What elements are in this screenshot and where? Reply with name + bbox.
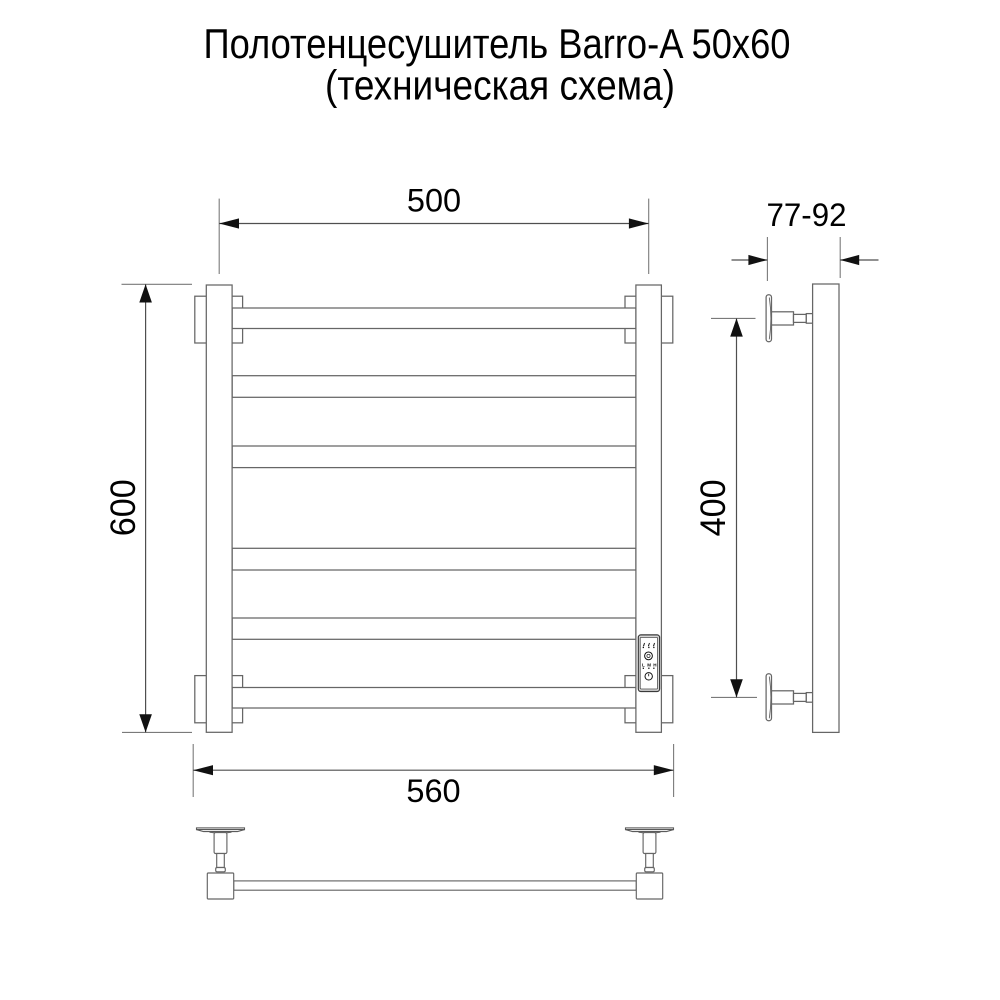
svg-text:600: 600 — [103, 479, 143, 536]
svg-text:500: 500 — [407, 183, 461, 219]
svg-text:(техническая схема): (техническая схема) — [325, 62, 675, 109]
svg-text:Полотенцесушитель Barro-A 50x6: Полотенцесушитель Barro-A 50x60 — [204, 20, 791, 67]
svg-text:L: L — [642, 662, 645, 667]
svg-text:560: 560 — [406, 773, 460, 809]
svg-text:77-92: 77-92 — [767, 197, 847, 233]
svg-text:M: M — [647, 662, 651, 667]
svg-text:400: 400 — [693, 479, 733, 536]
